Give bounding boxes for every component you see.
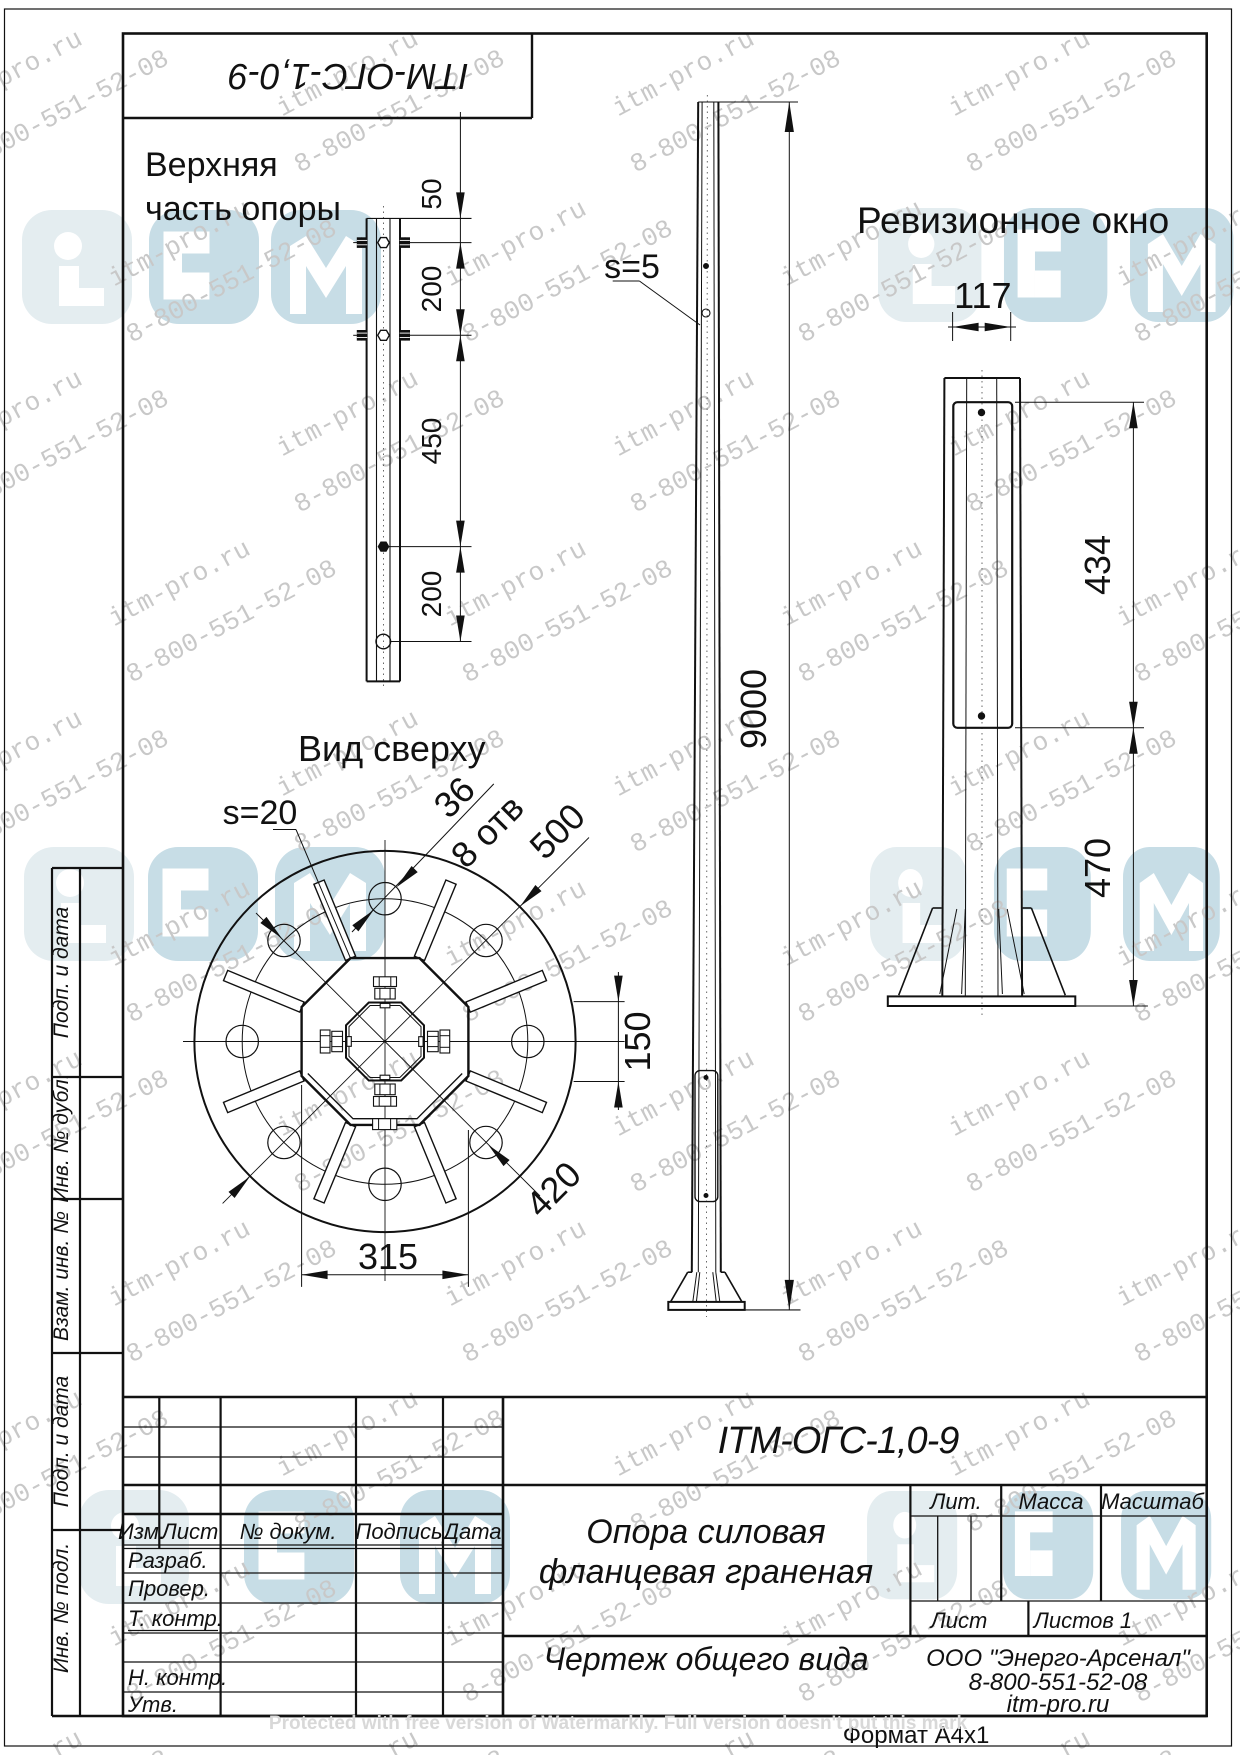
svg-text:itm-pro.ru: itm-pro.ru bbox=[1007, 1691, 1110, 1718]
svg-text:8-800-551-52-08: 8-800-551-52-08 bbox=[0, 1574, 6, 1710]
svg-text:s=5: s=5 bbox=[604, 248, 660, 286]
svg-text:ITM-ОГС-1,0-9: ITM-ОГС-1,0-9 bbox=[718, 1420, 960, 1462]
svg-text:200: 200 bbox=[416, 571, 447, 618]
svg-text:8-800-551-52-08: 8-800-551-52-08 bbox=[793, 1234, 1014, 1370]
svg-text:434: 434 bbox=[1077, 535, 1118, 595]
svg-text:500: 500 bbox=[521, 795, 592, 866]
svg-text:470: 470 bbox=[1077, 838, 1118, 898]
svg-text:itm-pro.ru: itm-pro.ru bbox=[0, 1724, 88, 1755]
svg-text:Вид сверху: Вид сверху bbox=[298, 728, 486, 769]
svg-text:8-800-551-52-08: 8-800-551-52-08 bbox=[961, 1064, 1182, 1200]
svg-text:8-800-551-52-08: 8-800-551-52-08 bbox=[457, 894, 678, 1030]
svg-text:8-800-551-52-08: 8-800-551-52-08 bbox=[625, 1064, 846, 1200]
svg-text:8-800-551-52-08: 8-800-551-52-08 bbox=[0, 1234, 6, 1370]
svg-text:8-800-551-52-08: 8-800-551-52-08 bbox=[961, 384, 1182, 520]
svg-text:Разраб.: Разраб. bbox=[128, 1548, 208, 1573]
svg-text:Подп. и дата: Подп. и дата bbox=[50, 907, 73, 1038]
svg-text:8-800-551-52-08: 8-800-551-52-08 bbox=[457, 554, 678, 690]
svg-text:Т. контр.: Т. контр. bbox=[128, 1606, 223, 1631]
svg-text:8-800-551-52-08: 8-800-551-52-08 bbox=[0, 554, 6, 690]
svg-text:Масса: Масса bbox=[1018, 1489, 1083, 1514]
svg-text:Лит.: Лит. bbox=[928, 1489, 982, 1514]
svg-text:200: 200 bbox=[416, 266, 447, 313]
svg-text:Опора силовая: Опора силовая bbox=[586, 1513, 825, 1551]
svg-text:8-800-551-52-08: 8-800-551-52-08 bbox=[121, 554, 342, 690]
svg-text:Подп. и дата: Подп. и дата bbox=[50, 1376, 73, 1507]
svg-text:Взам. инв. №: Взам. инв. № bbox=[50, 1211, 73, 1341]
svg-text:8-800-551-52-08: 8-800-551-52-08 bbox=[121, 1234, 342, 1370]
svg-text:Лист: Лист bbox=[929, 1608, 988, 1633]
svg-text:Листов 1: Листов 1 bbox=[1032, 1608, 1132, 1633]
svg-text:Верхняя: Верхняя bbox=[145, 146, 278, 184]
svg-text:ITM-ОГС-1,0-9: ITM-ОГС-1,0-9 bbox=[228, 56, 468, 97]
svg-text:ООО "Энерго-Арсенал": ООО "Энерго-Арсенал" bbox=[926, 1645, 1191, 1672]
svg-text:8-800-551-52-08: 8-800-551-52-08 bbox=[457, 1234, 678, 1370]
svg-text:Ревизионное окно: Ревизионное окно bbox=[857, 200, 1169, 241]
svg-text:Инв. № дубл.: Инв. № дубл. bbox=[50, 1073, 73, 1202]
svg-text:117: 117 bbox=[954, 275, 1011, 316]
svg-text:Изм.: Изм. bbox=[118, 1519, 165, 1544]
svg-text:часть опоры: часть опоры bbox=[145, 190, 341, 228]
svg-text:8-800-551-52-08: 8-800-551-52-08 bbox=[625, 44, 846, 180]
svg-text:Protected with free version of: Protected with free version of Watermark… bbox=[269, 1713, 968, 1734]
svg-text:Н. контр.: Н. контр. bbox=[128, 1665, 227, 1690]
svg-text:Чертеж общего вида: Чертеж общего вида bbox=[543, 1641, 868, 1677]
svg-text:Провер.: Провер. bbox=[128, 1576, 210, 1601]
svg-text:фланцевая граненая: фланцевая граненая bbox=[539, 1553, 873, 1591]
svg-text:8-800-551-52-08: 8-800-551-52-08 bbox=[625, 384, 846, 520]
svg-text:315: 315 bbox=[358, 1236, 418, 1277]
svg-text:420: 420 bbox=[517, 1153, 588, 1224]
svg-text:450: 450 bbox=[416, 418, 447, 465]
svg-text:Подпись: Подпись bbox=[355, 1519, 442, 1544]
svg-text:8-800-551-52-08: 8-800-551-52-08 bbox=[0, 214, 6, 350]
svg-text:Лист: Лист bbox=[160, 1519, 219, 1544]
svg-text:8-800-551-52-08: 8-800-551-52-08 bbox=[0, 894, 6, 1030]
svg-text:Утв.: Утв. bbox=[127, 1692, 178, 1717]
svg-text:150: 150 bbox=[617, 1011, 658, 1071]
svg-text:№ докум.: № докум. bbox=[240, 1519, 337, 1544]
svg-text:Инв. № подл.: Инв. № подл. bbox=[50, 1543, 73, 1673]
svg-text:50: 50 bbox=[416, 178, 447, 209]
svg-text:8-800-551-52-08: 8-800-551-52-08 bbox=[793, 554, 1014, 690]
svg-text:Дата: Дата bbox=[440, 1519, 501, 1544]
svg-text:Масштаб: Масштаб bbox=[1101, 1489, 1205, 1514]
svg-text:8-800-551-52-08: 8-800-551-52-08 bbox=[961, 724, 1182, 860]
svg-text:8-800-551-52-08: 8-800-551-52-08 bbox=[961, 44, 1182, 180]
svg-text:9000: 9000 bbox=[733, 669, 774, 749]
svg-text:s=20: s=20 bbox=[223, 794, 298, 832]
